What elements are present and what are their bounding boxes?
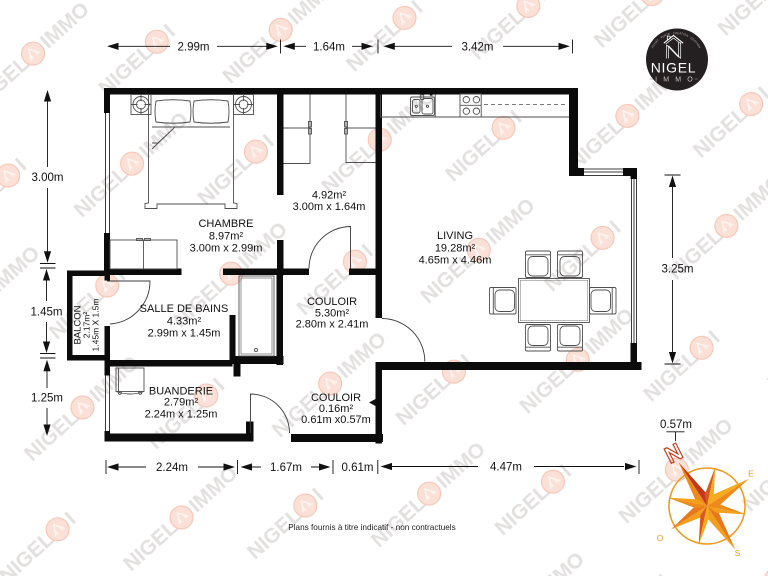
svg-text:4.65m x 4.46m: 4.65m x 4.46m	[419, 255, 492, 267]
svg-text:3.42m: 3.42m	[462, 42, 494, 54]
svg-text:1.67m: 1.67m	[270, 462, 302, 474]
svg-text:8.97m²: 8.97m²	[209, 231, 244, 243]
svg-text:O: O	[657, 533, 664, 543]
svg-text:2.99m: 2.99m	[178, 42, 210, 54]
svg-text:1.64m: 1.64m	[313, 42, 345, 54]
svg-text:3.00m x 2.99m: 3.00m x 2.99m	[190, 243, 263, 255]
svg-text:Plans fournis à titre indicati: Plans fournis à titre indicatif - non co…	[288, 523, 455, 532]
svg-text:LIVING: LIVING	[437, 230, 473, 242]
svg-text:0.61m x0.57m: 0.61m x0.57m	[301, 414, 371, 426]
svg-text:COULOIR: COULOIR	[307, 296, 357, 308]
svg-text:2.24m: 2.24m	[156, 462, 188, 474]
svg-text:SALLE DE BAINS: SALLE DE BAINS	[140, 303, 229, 315]
svg-text:2.24m x 1.25m: 2.24m x 1.25m	[145, 409, 218, 421]
svg-text:CHAMBRE: CHAMBRE	[198, 218, 253, 230]
svg-text:0.57m: 0.57m	[660, 419, 692, 431]
svg-text:4.92m²: 4.92m²	[312, 190, 347, 202]
svg-text:2.80m x 2.41m: 2.80m x 2.41m	[296, 319, 369, 331]
svg-text:4.33m²: 4.33m²	[167, 316, 202, 328]
svg-text:S: S	[735, 548, 741, 558]
svg-text:3.00m x 1.64m: 3.00m x 1.64m	[293, 201, 366, 213]
svg-text:3.00m: 3.00m	[32, 172, 64, 184]
svg-text:19.28m²: 19.28m²	[435, 243, 476, 255]
svg-text:1.25m: 1.25m	[31, 393, 63, 405]
svg-text:0.61m: 0.61m	[342, 462, 374, 474]
svg-text:4.47m: 4.47m	[490, 462, 522, 474]
svg-text:IMMO: IMMO	[655, 77, 699, 84]
svg-text:2.79m²: 2.79m²	[164, 397, 199, 409]
svg-text:2.99m x 1.45m: 2.99m x 1.45m	[148, 328, 221, 340]
svg-text:1.45m: 1.45m	[31, 307, 63, 319]
svg-text:3.25m: 3.25m	[662, 264, 694, 276]
svg-text:NIGEL: NIGEL	[651, 59, 697, 75]
svg-text:1.45m X 1.5m: 1.45m X 1.5m	[91, 299, 101, 352]
svg-text:E: E	[748, 469, 754, 479]
